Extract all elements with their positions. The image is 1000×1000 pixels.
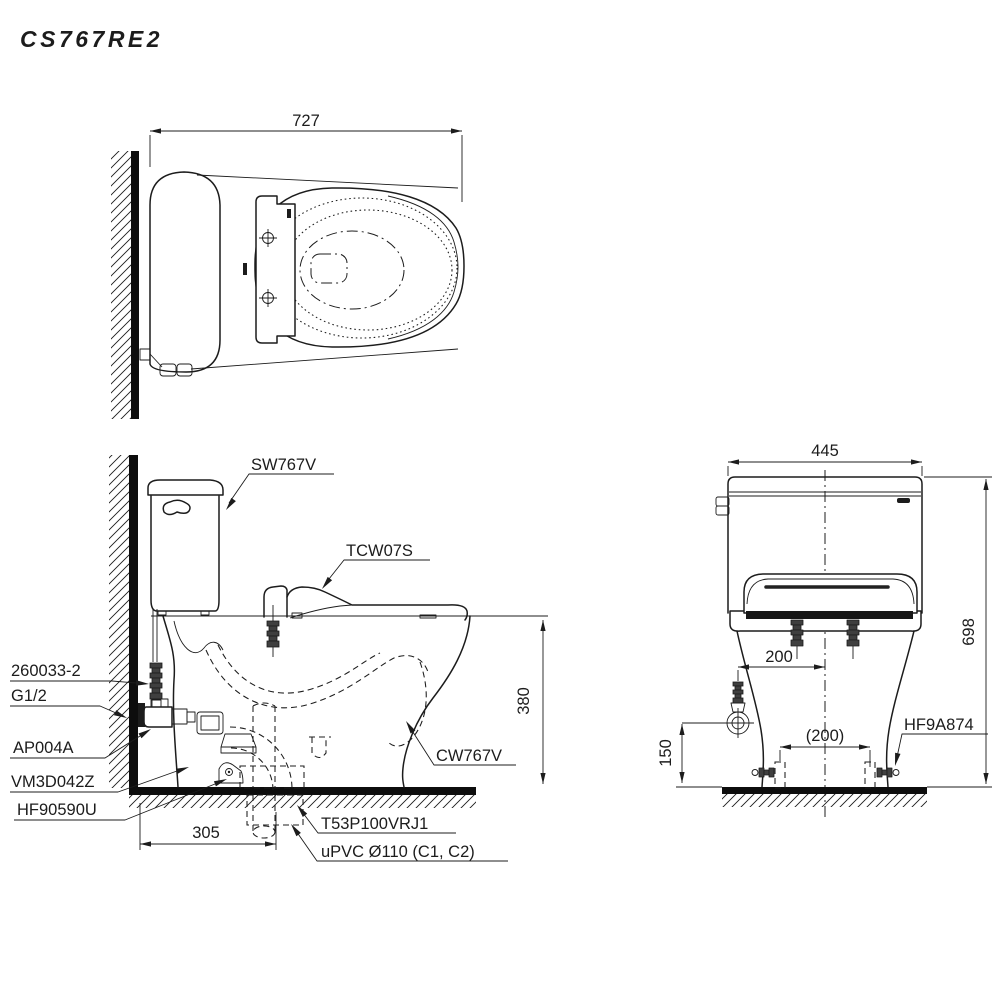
supply-bolt	[722, 682, 754, 738]
pedestal-left	[737, 631, 763, 787]
flush-button	[163, 500, 190, 514]
dim-698: 698	[924, 477, 992, 784]
dim-305: 305	[140, 803, 276, 850]
seat-front	[744, 574, 917, 613]
trap-top-curve	[174, 621, 223, 653]
dim-200-value: 200	[765, 648, 793, 666]
floor	[722, 787, 927, 794]
tank-top	[150, 172, 220, 372]
label-bolt-cap: HF9A874	[904, 716, 974, 734]
supply-inlet	[716, 497, 729, 506]
dim-150-value: 150	[657, 739, 675, 767]
floor	[129, 787, 476, 795]
label-stop-valve: AP004A	[13, 739, 74, 757]
wall	[131, 151, 139, 419]
technical-drawing: CS767RE2 727	[0, 0, 1000, 1000]
wall-hatch	[111, 151, 131, 419]
label-flange: T53P100VRJ1	[321, 815, 428, 833]
floor-connector	[197, 712, 256, 783]
label-drain-pipe: uPVC Ø110 (C1, C2)	[321, 843, 475, 861]
label-seat-unit: TCW07S	[346, 542, 413, 560]
seat-hinge-band	[746, 611, 913, 619]
drawing-page: CS767RE2 727	[0, 0, 1000, 1000]
pedestal-back	[163, 616, 178, 787]
hinge-mark	[287, 209, 291, 218]
tank-side	[148, 480, 223, 615]
hinge-plate	[256, 196, 295, 343]
label-thread: G1/2	[11, 687, 47, 705]
model-code: CS767RE2	[20, 26, 163, 52]
side-view: 380 305 SW767V TCW07S CW767V 260033-2	[10, 455, 548, 861]
dim-445-value: 445	[811, 442, 839, 460]
tank-button	[897, 498, 910, 503]
label-floor-fixing: HF90590U	[17, 801, 97, 819]
flange-mark	[243, 263, 247, 275]
top-view: 727	[111, 112, 464, 419]
dim-200-bolts-value: (200)	[806, 727, 845, 745]
part-labels-front: HF9A874	[895, 716, 988, 766]
dim-200-bolts: (200)	[780, 727, 870, 767]
floor-hatch	[722, 794, 927, 807]
label-bowl: CW767V	[436, 747, 502, 765]
dim-727-value: 727	[292, 112, 320, 130]
label-tank: SW767V	[251, 456, 316, 474]
front-view: 445 698 200 (200) 150	[657, 442, 992, 818]
pedestal-right	[887, 631, 914, 787]
trapway-hidden	[206, 645, 428, 790]
dim-380-value: 380	[515, 687, 533, 715]
dim-380: 380	[515, 620, 546, 784]
dim-698-value: 698	[960, 618, 978, 646]
dim-305-value: 305	[192, 824, 220, 842]
seat-side	[264, 586, 467, 657]
label-connector: VM3D042Z	[11, 773, 94, 791]
dim-150: 150	[657, 723, 726, 783]
dim-200: 200	[738, 648, 825, 681]
wall-hatch	[109, 455, 129, 788]
label-supply-hose: 260033-2	[11, 662, 81, 680]
seat-supply-hose	[267, 605, 279, 657]
